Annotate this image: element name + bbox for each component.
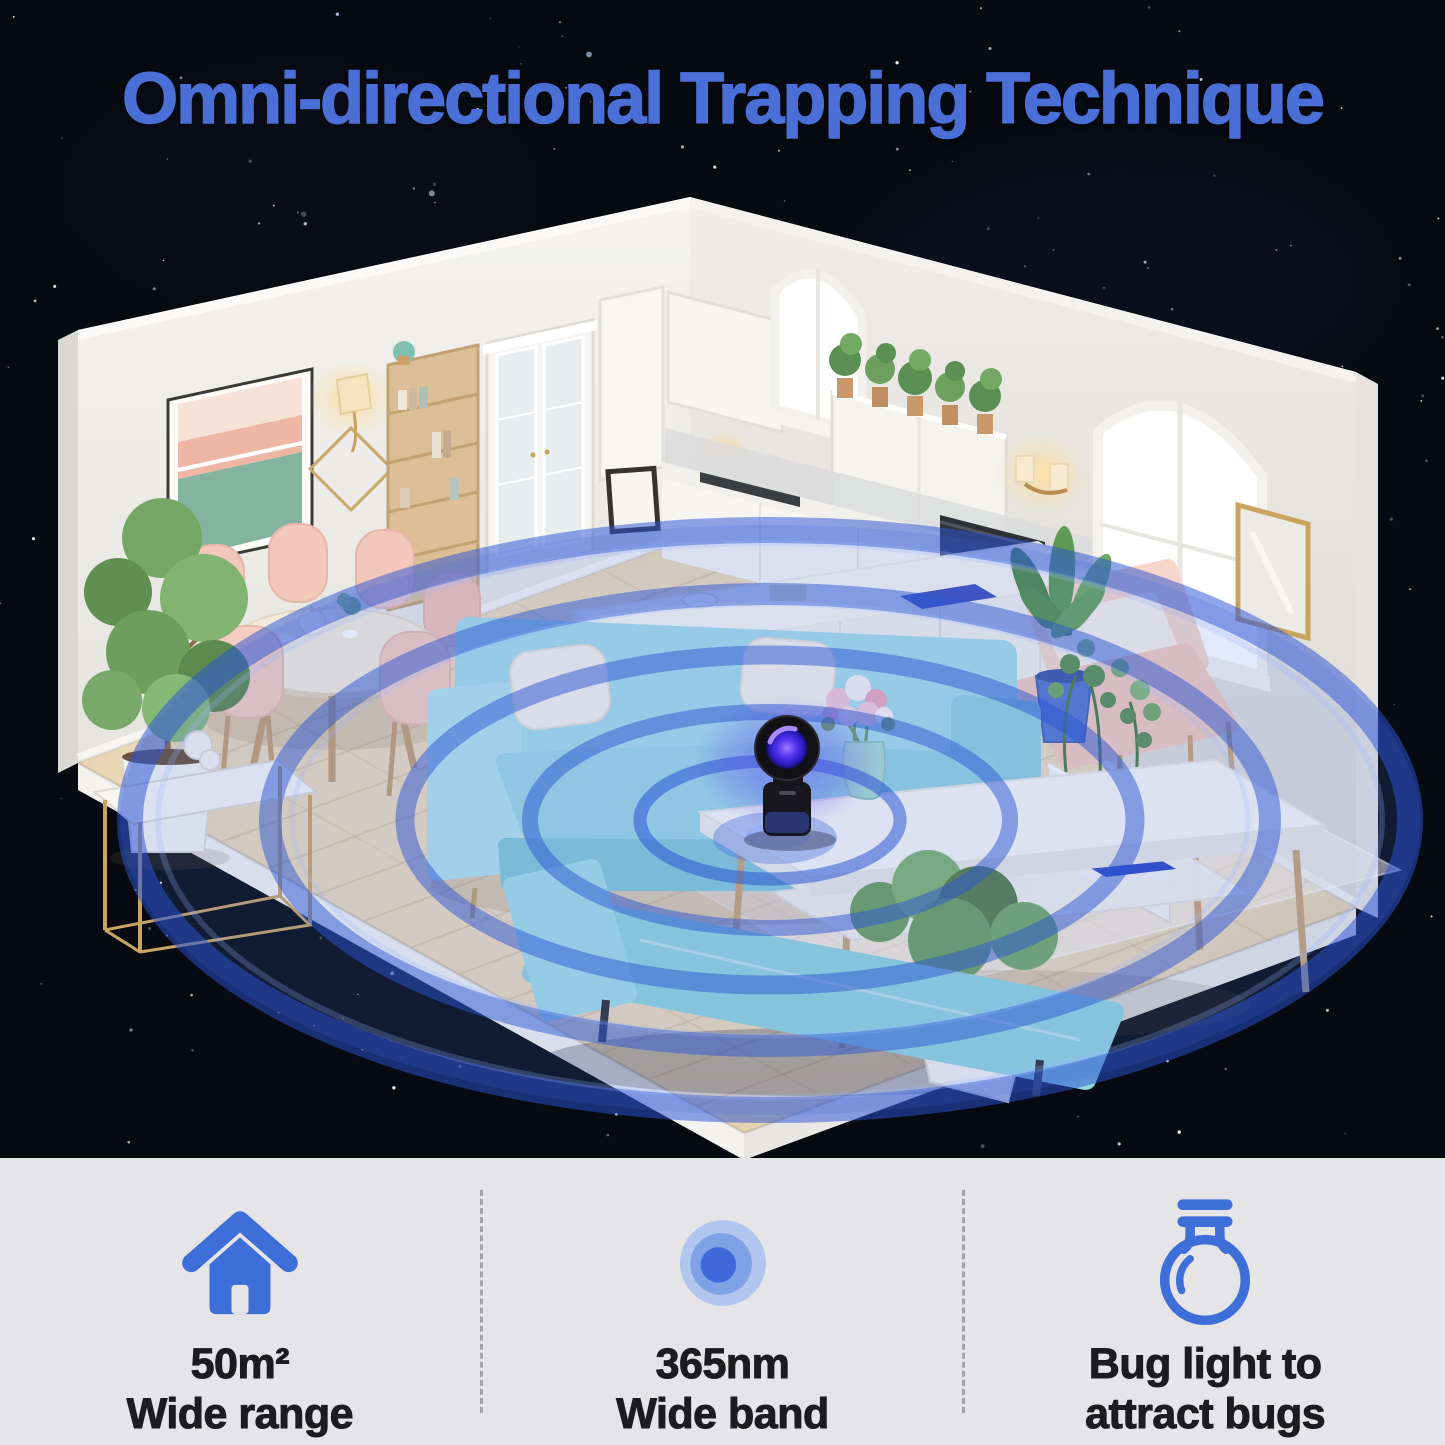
feature-bar: 50m² Wide range 365nm Wide band xyxy=(0,1158,1445,1445)
room xyxy=(58,197,1420,1158)
bulb-icon xyxy=(1152,1197,1258,1329)
corner-cabinet xyxy=(600,287,663,480)
feature-wide-band: 365nm Wide band xyxy=(483,1158,963,1445)
feature-wide-range: 50m² Wide range xyxy=(0,1158,480,1445)
product-infographic: Omni-directional Trapping Technique xyxy=(0,0,1445,1445)
feature-line2: attract bugs xyxy=(1085,1390,1325,1440)
uv-light-ring xyxy=(766,727,808,769)
dining-chair xyxy=(269,524,327,602)
room-illustration xyxy=(0,0,1445,1158)
device-logo xyxy=(779,791,796,795)
signal-dot-icon xyxy=(667,1207,779,1319)
feature-line1: 365nm xyxy=(616,1340,829,1390)
feature-line2: Wide band xyxy=(616,1390,829,1440)
house-icon xyxy=(179,1207,301,1319)
double-wall-sconce xyxy=(994,432,1090,516)
feature-line1: 50m² xyxy=(127,1340,353,1390)
feature-line1: Bug light to xyxy=(1085,1340,1325,1390)
feature-bug-light: Bug light to attract bugs xyxy=(965,1158,1445,1445)
headline: Omni-directional Trapping Technique xyxy=(0,58,1445,140)
feature-line2: Wide range xyxy=(127,1390,353,1440)
